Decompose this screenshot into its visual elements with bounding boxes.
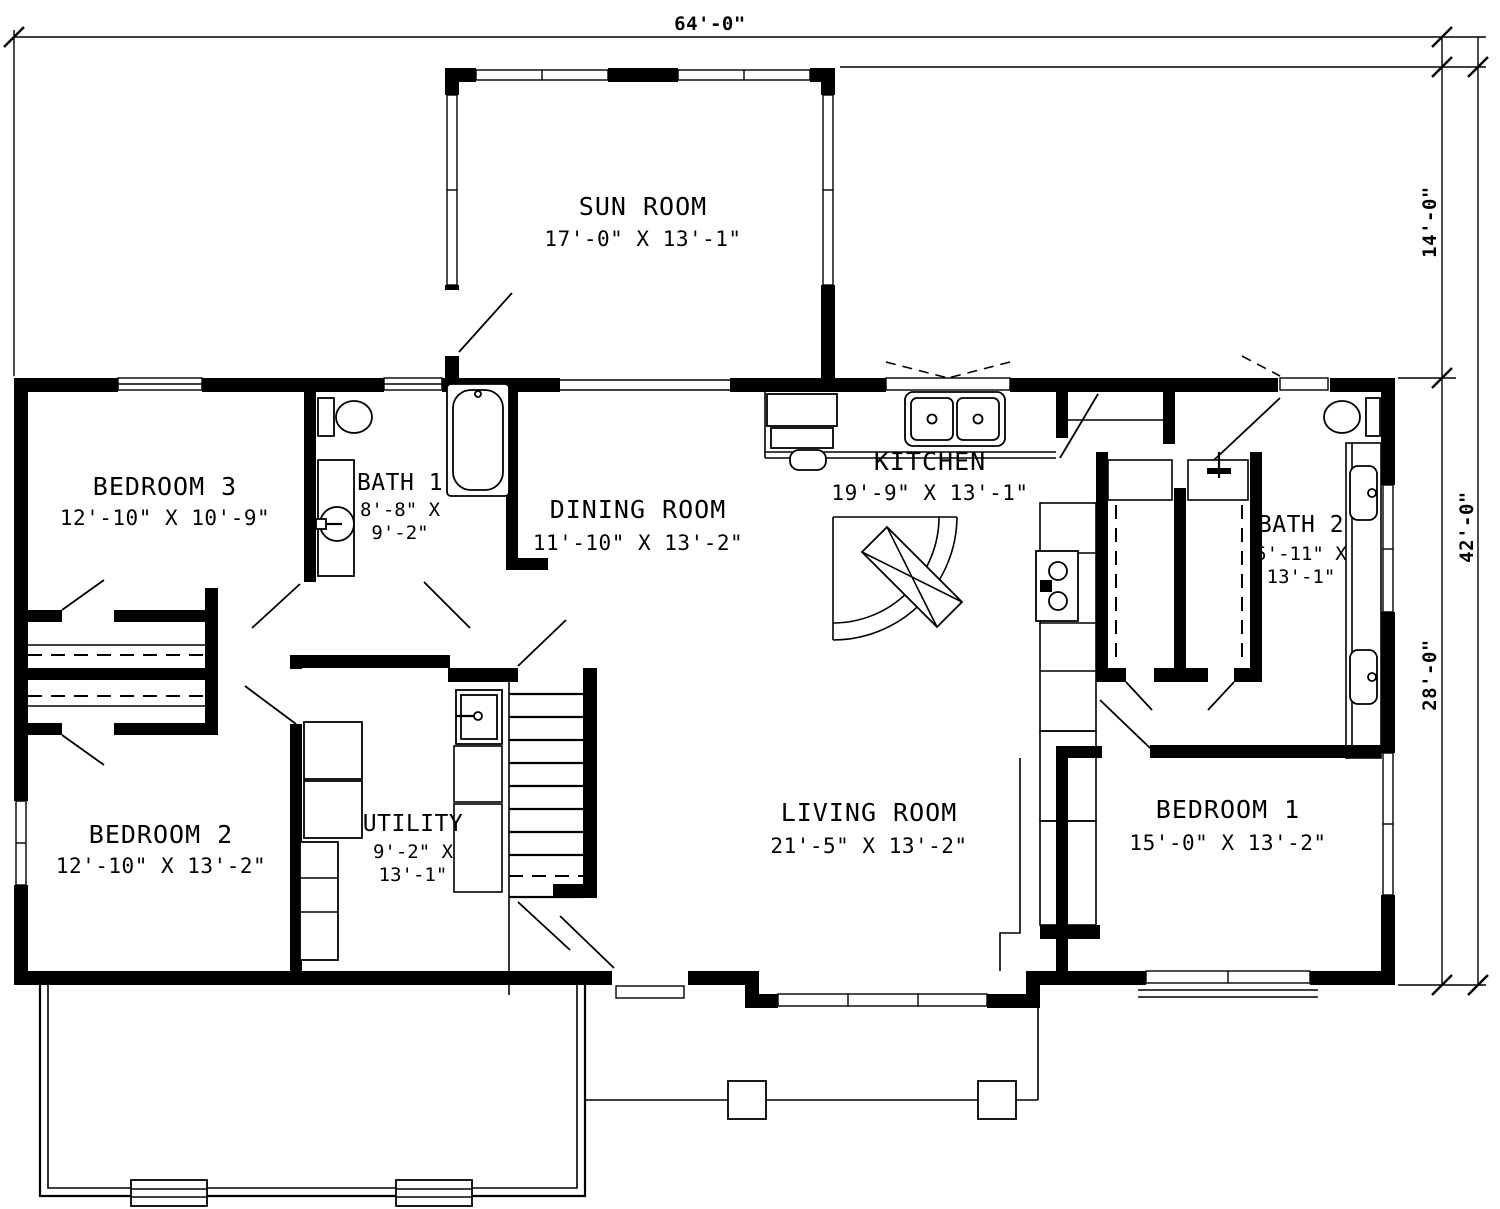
label-bath-1: BATH 1 bbox=[357, 470, 443, 496]
kitchen-appliance bbox=[790, 450, 826, 470]
dims-bath-1-line1: 8'-8" X bbox=[360, 499, 441, 521]
shower-head-icon bbox=[1207, 452, 1231, 478]
kitchen-sink-icon bbox=[905, 392, 1005, 446]
kitchen-corner-island bbox=[833, 517, 962, 640]
window-sunroom-top-left bbox=[476, 66, 608, 84]
dims-utility-line1: 9'-2" X bbox=[373, 841, 454, 863]
floor-plan-drawing: 64'-0" 14'-0" 42'-0" 28'-0" bbox=[0, 0, 1500, 1209]
label-utility: UTILITY bbox=[363, 811, 463, 837]
washer-dryer-icons bbox=[300, 722, 362, 960]
stove-icon bbox=[1036, 551, 1078, 621]
label-bedroom-2: BEDROOM 2 bbox=[89, 820, 233, 849]
window-bedroom2-left bbox=[12, 801, 30, 885]
bathtub-icon bbox=[447, 384, 509, 496]
window-bedroom3-top bbox=[118, 376, 202, 394]
dims-bedroom-2: 12'-10" X 13'-2" bbox=[56, 854, 266, 878]
porch-step bbox=[396, 1180, 472, 1206]
sunroom-door bbox=[445, 290, 512, 356]
dim-overall-depth: 42'-0" bbox=[1456, 491, 1478, 563]
dims-sun-room: 17'-0" X 13'-1" bbox=[544, 227, 741, 251]
room-labels: SUN ROOM 17'-0" X 13'-1" BEDROOM 3 12'-1… bbox=[56, 192, 1347, 886]
window-sunroom-top-right bbox=[678, 66, 810, 84]
porch-step bbox=[131, 1180, 207, 1206]
dims-bedroom-1: 15'-0" X 13'-2" bbox=[1129, 831, 1326, 855]
window-sunroom-left bbox=[443, 95, 461, 285]
label-bedroom-1: BEDROOM 1 bbox=[1156, 795, 1300, 824]
dims-bath-2-line1: 5'-11" X bbox=[1255, 543, 1347, 565]
kitchen-appliance bbox=[767, 394, 837, 426]
window-bedroom1-bottom bbox=[1138, 969, 1318, 997]
dims-living-room: 21'-5" X 13'-2" bbox=[770, 834, 967, 858]
label-sun-room: SUN ROOM bbox=[579, 192, 707, 221]
dims-utility-line2: 13'-1" bbox=[379, 864, 448, 886]
label-dining-room: DINING ROOM bbox=[550, 495, 727, 524]
porch bbox=[40, 985, 1038, 1206]
label-living-room: LIVING ROOM bbox=[781, 798, 958, 827]
dims-bath-2-line2: 13'-1" bbox=[1267, 566, 1336, 588]
toilet-bath2-icon bbox=[1324, 398, 1380, 436]
dim-sunroom-depth: 14'-0" bbox=[1419, 186, 1441, 258]
dims-kitchen: 19'-9" X 13'-1" bbox=[831, 481, 1028, 505]
dim-main-depth: 28'-0" bbox=[1419, 639, 1441, 711]
stairs bbox=[509, 682, 583, 995]
utility-sink-icon bbox=[454, 690, 502, 892]
window-bedroom1-right bbox=[1379, 753, 1397, 895]
label-kitchen: KITCHEN bbox=[874, 447, 986, 476]
label-bedroom-3: BEDROOM 3 bbox=[93, 472, 237, 501]
kitchen-appliance bbox=[771, 428, 833, 448]
bath2-vanity bbox=[1346, 443, 1381, 758]
window-kitchen-top bbox=[886, 362, 1010, 394]
window-sunroom-right bbox=[819, 95, 837, 285]
label-bath-2: BATH 2 bbox=[1258, 512, 1344, 538]
dims-bedroom-3: 12'-10" X 10'-9" bbox=[60, 506, 270, 530]
dims-dining-room: 11'-10" X 13'-2" bbox=[533, 531, 743, 555]
window-living-bay bbox=[778, 992, 987, 1008]
toilet-bath1-icon bbox=[318, 398, 372, 436]
porch-post bbox=[728, 1081, 766, 1119]
dims-bath-1-line2: 9'-2" bbox=[371, 522, 428, 544]
porch-post bbox=[978, 1081, 1016, 1119]
window-bath1-top bbox=[384, 376, 442, 394]
floor-plan-sheet: 64'-0" 14'-0" 42'-0" 28'-0" bbox=[0, 0, 1500, 1209]
front-door bbox=[560, 916, 688, 998]
dim-overall-width: 64'-0" bbox=[674, 13, 746, 35]
